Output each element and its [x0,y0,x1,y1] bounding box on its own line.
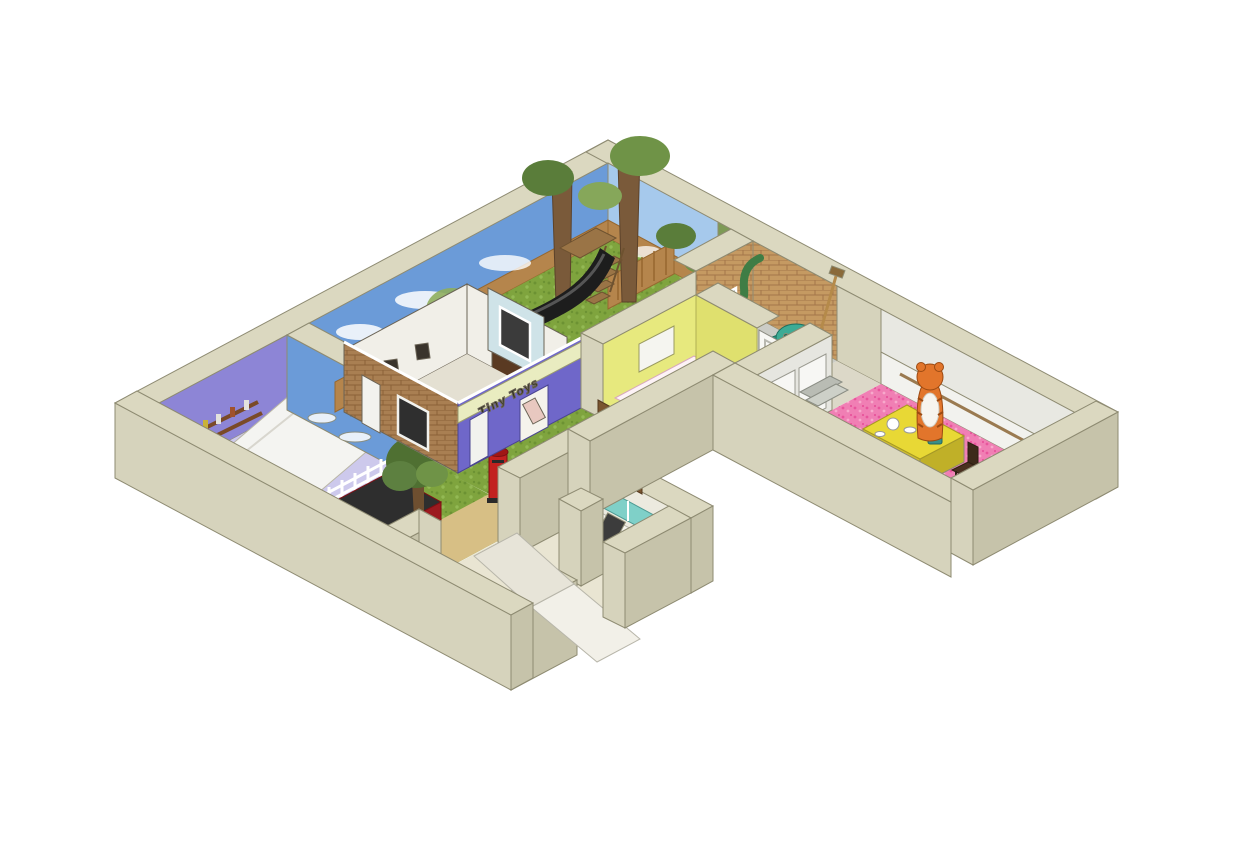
foliage [610,136,670,176]
teapot [887,418,899,430]
w-wall-end [511,603,533,690]
foliage [522,160,574,196]
stub-s-wall-end [603,542,625,628]
isometric-scene: Tiny Toys [0,0,1235,865]
cloud [339,432,371,442]
prop-bottle [216,414,221,424]
tiger-ear [917,363,926,372]
wing-se-wall-end [951,478,973,565]
post-box-slot [492,460,504,463]
pillar-face-se [581,499,603,586]
foliage [656,223,696,249]
house-door [362,375,380,433]
tiger-bib [921,393,939,427]
yard-tree-canopy [382,461,418,491]
tiger-figure [917,363,944,442]
prop-bottle [244,400,249,410]
foliage [578,182,622,210]
prop-bottle [230,407,235,417]
shop-door [470,410,488,466]
cloud [308,413,336,423]
picture-frame [415,343,430,360]
plate [904,427,916,433]
tiger-ear [935,363,944,372]
stub-wall-end [691,506,713,593]
plate [875,432,885,437]
floorplan-render: Tiny Toys [0,0,1235,865]
cloud [479,255,531,271]
